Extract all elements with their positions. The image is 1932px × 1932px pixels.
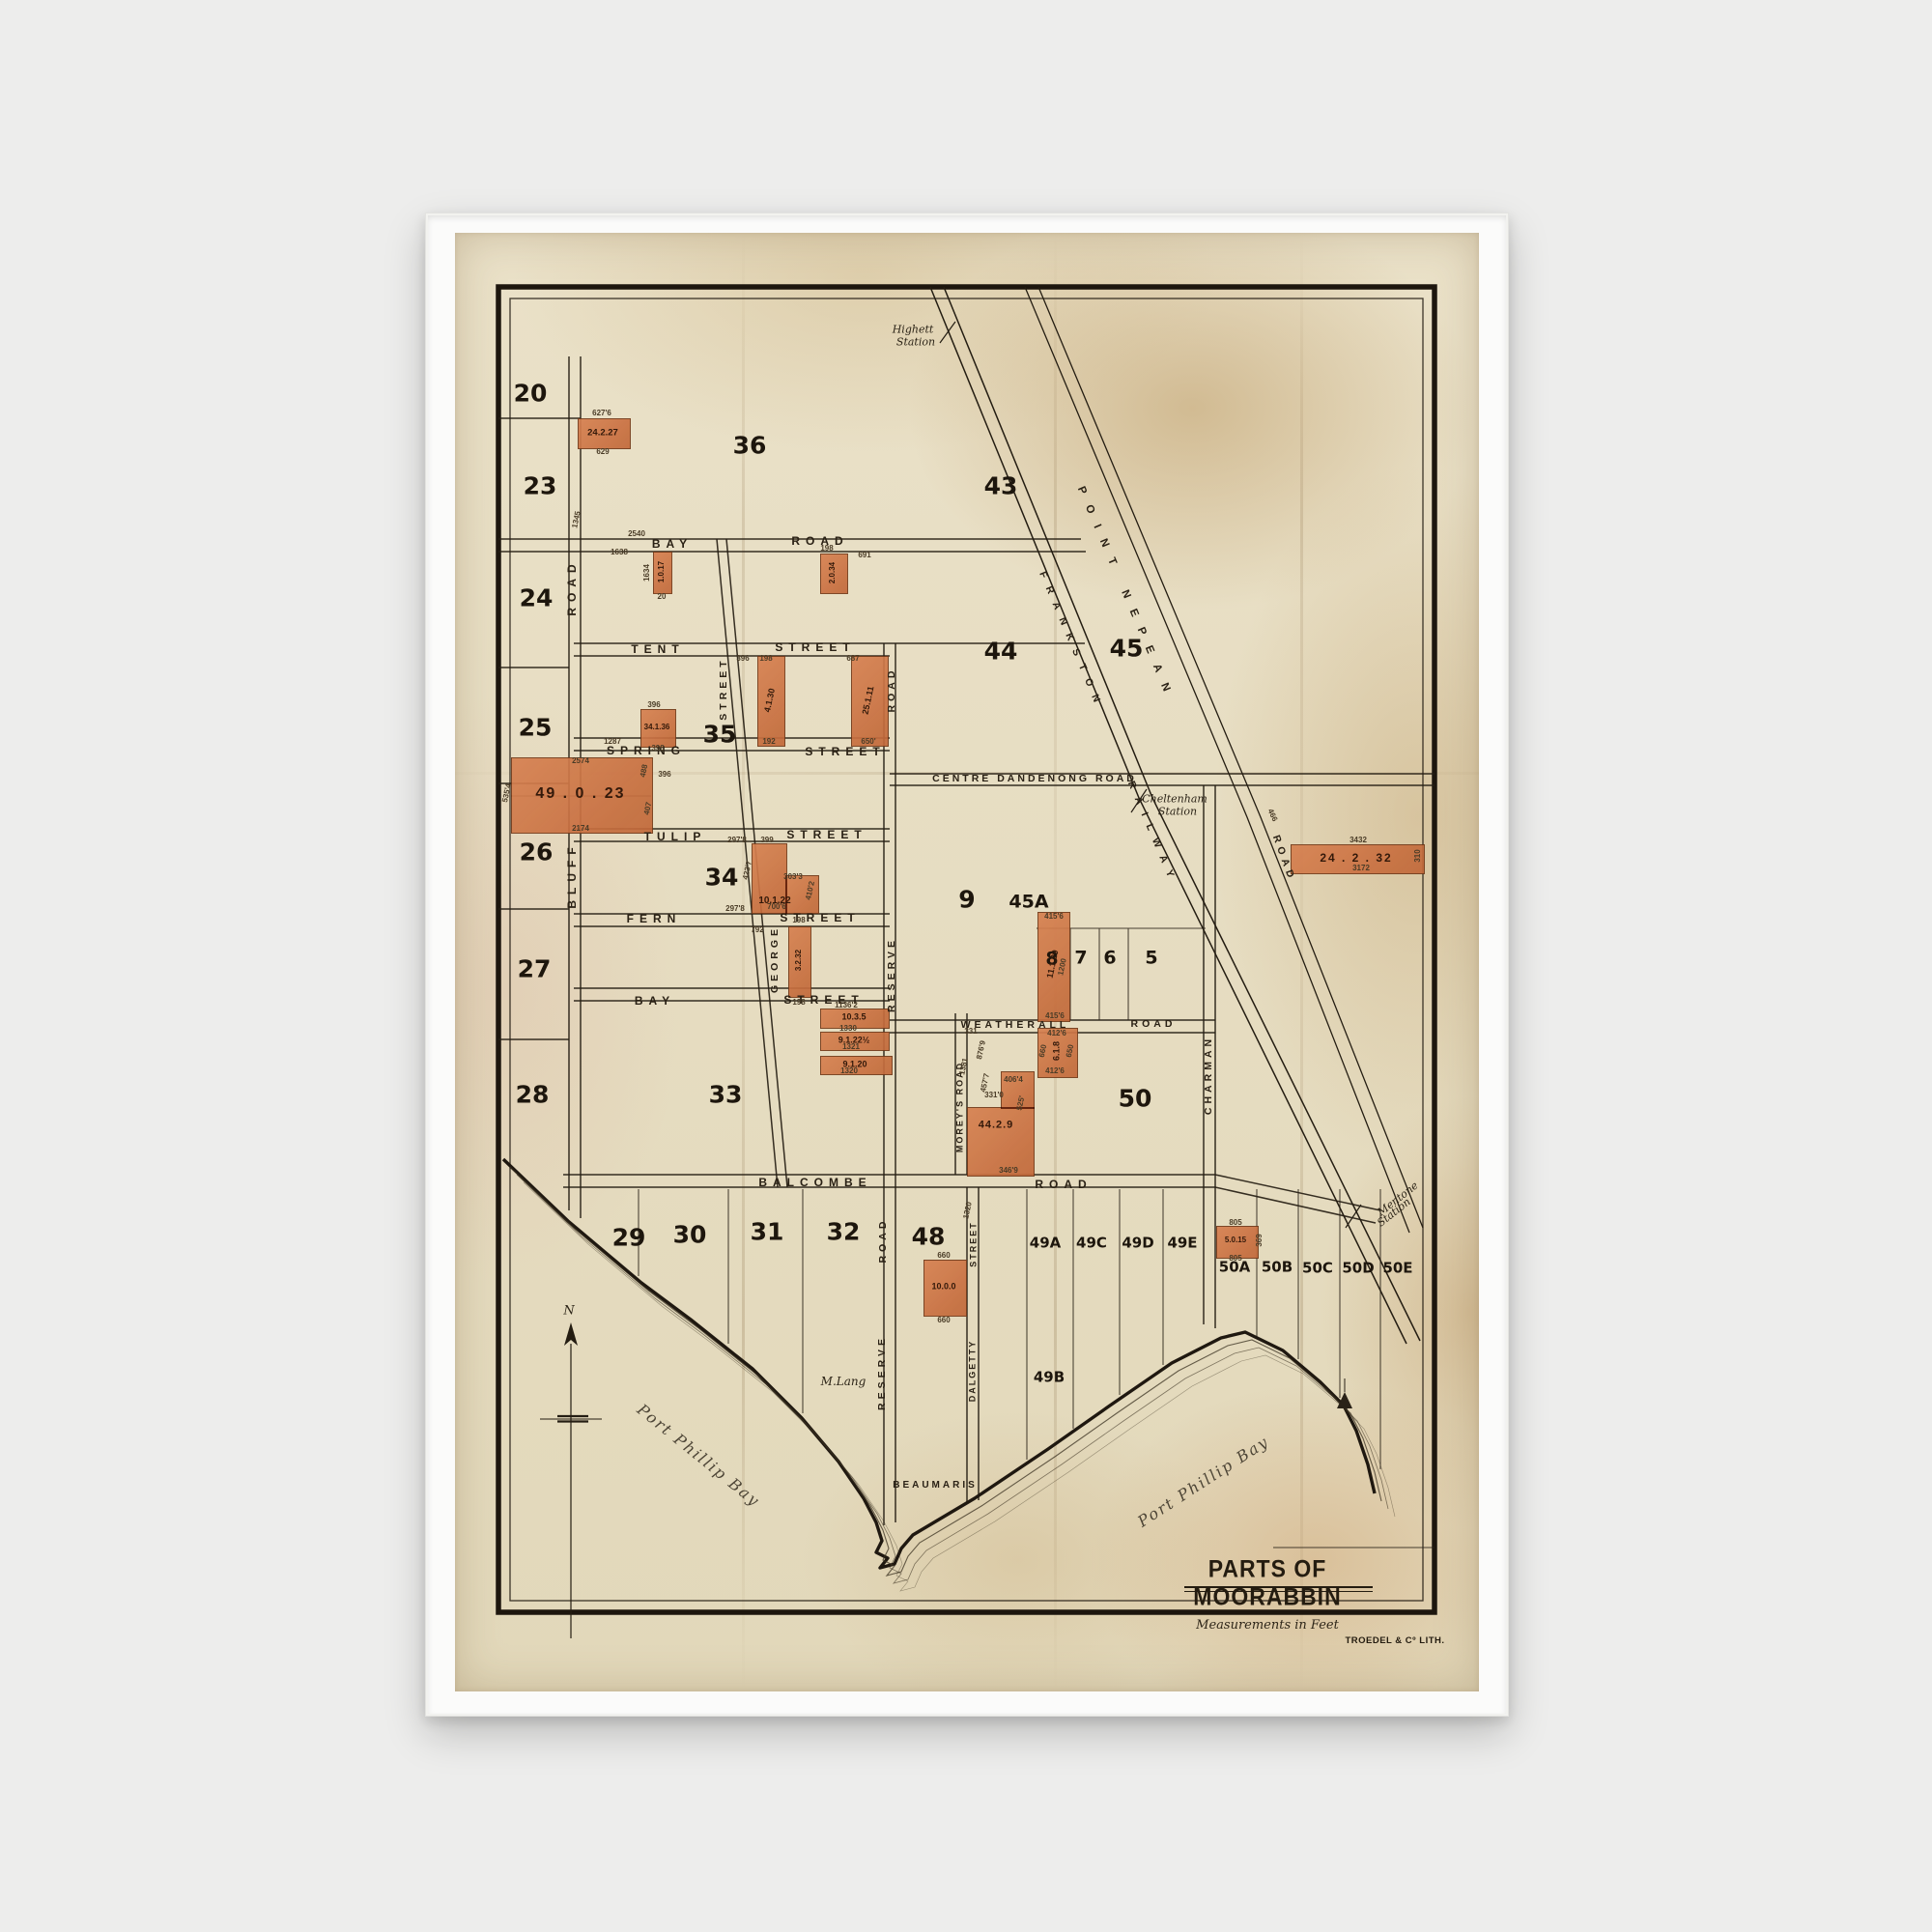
street-label: FERN: [627, 913, 682, 924]
block-number-label: 23: [524, 474, 557, 498]
parcel-acreage-label: 25.1.11: [862, 686, 876, 716]
measurement-label: 396: [736, 655, 749, 663]
measurement-label: 369: [1256, 1234, 1264, 1246]
street-label: ROAD: [1131, 1019, 1177, 1030]
measurement-label: 1320: [840, 1067, 858, 1075]
street-label: FRANKSTON: [1037, 570, 1106, 712]
street-label: CHARMAN: [1204, 1036, 1214, 1115]
parcel-acreage-label: 10.3.5: [841, 1013, 866, 1022]
measurement-label: 412'6: [1047, 1030, 1066, 1037]
parcel-acreage-label: 3.2.32: [795, 950, 803, 971]
block-number-label: 5: [1145, 950, 1157, 968]
block-number-label: 25: [519, 716, 553, 740]
block-number-label: 26: [520, 840, 554, 865]
street-label: CENTRE DANDENONG ROAD: [932, 774, 1137, 784]
measurement-label: 198: [792, 999, 805, 1007]
parcel-acreage-label: 24.2.27: [587, 428, 618, 438]
station-label: Station: [896, 337, 935, 348]
block-number-label: 45A: [1009, 894, 1048, 912]
measurement-label: 1200: [1057, 957, 1068, 976]
measurement-label: 1330: [839, 1025, 857, 1033]
measurement-label: 297'8: [727, 837, 747, 844]
poster-paper: BAYROADTENTSTREETSPRINGSTREETCENTRE DAND…: [455, 233, 1479, 1691]
parcel-acreage-label: 24 . 2 . 32: [1320, 852, 1392, 864]
measurement-label: 805: [1229, 1255, 1241, 1263]
street-label: TENT: [631, 643, 684, 655]
street-label: STREET: [970, 1221, 979, 1267]
parcel-acreage-label: 44.2.9: [979, 1121, 1014, 1131]
block-number-label: 32: [827, 1220, 861, 1244]
block-number-label: 49D: [1122, 1236, 1153, 1251]
measurement-label: 20: [658, 593, 667, 601]
block-number-label: 30: [673, 1223, 707, 1247]
street-label: STREET: [775, 641, 855, 653]
measurement-label: 629: [596, 448, 609, 456]
measurement-label: 535'4: [501, 783, 513, 804]
measurement-label: 1320: [962, 1201, 974, 1219]
block-number-label: 20: [514, 382, 548, 406]
measurement-label: 660: [1038, 1044, 1049, 1059]
measurement-label: 192: [762, 738, 775, 746]
street-label: BEAUMARIS: [893, 1481, 978, 1491]
measurement-label: 488: [639, 764, 650, 779]
block-number-label: 50E: [1382, 1262, 1412, 1276]
measurement-label: 650': [861, 738, 875, 746]
measurement-label: 331: [964, 1028, 977, 1036]
lithographer-credit: TROEDEL & Cº LITH.: [1322, 1635, 1467, 1646]
measurement-label: 407: [643, 802, 654, 816]
parcel-acreage-label: 49 . 0 . 23: [535, 786, 625, 802]
measurement-label: 310: [1414, 849, 1422, 862]
map-subtitle: Measurements in Feet: [1163, 1618, 1372, 1633]
station-label: Highett: [893, 325, 934, 335]
measurement-label: 297'8: [725, 905, 745, 913]
map-title-block: PARTS OF MOORABBIN Measurements in Feet: [1163, 1557, 1372, 1633]
block-number-label: 27: [518, 957, 552, 981]
measurement-label: 1381: [958, 1057, 970, 1075]
measurement-label: 700'6: [767, 903, 786, 911]
measurement-label: 1345: [571, 510, 582, 528]
street-label: BAY: [652, 538, 693, 550]
block-number-label: 36: [733, 434, 767, 458]
water-body-label: Port Phillip Bay: [635, 1402, 763, 1510]
parcel-acreage-label: 4.1.30: [763, 688, 777, 713]
street-label: GEORGE: [770, 925, 781, 993]
block-number-label: 49C: [1076, 1236, 1107, 1251]
station-label: N: [563, 1305, 574, 1318]
block-number-label: 35: [703, 723, 737, 747]
measurement-label: 331'0: [984, 1092, 1004, 1099]
parcel-acreage-label: 5.0.15: [1225, 1236, 1246, 1244]
station-label: M.Lang: [821, 1376, 867, 1387]
measurement-label: 1634: [643, 564, 651, 582]
measurement-label: 876'9: [976, 1040, 987, 1061]
measurement-label: 2574: [572, 757, 589, 765]
station-label: Cheltenham: [1142, 794, 1207, 805]
wall: BAYROADTENTSTREETSPRINGSTREETCENTRE DAND…: [0, 0, 1932, 1932]
street-label: ROAD: [1035, 1179, 1092, 1190]
street-label: RESERVE: [887, 937, 897, 1012]
measurement-label: 396: [647, 701, 660, 709]
water-body-label: Port Phillip Bay: [1135, 1434, 1271, 1530]
block-number-label: 43: [984, 474, 1018, 498]
measurement-label: 1638: [611, 549, 628, 556]
measurement-label: 466: [1266, 808, 1279, 822]
measurement-label: 198: [759, 655, 772, 663]
measurement-label: 627'6: [592, 410, 611, 417]
measurement-label: 687: [846, 655, 859, 663]
measurement-label: 3432: [1350, 837, 1367, 844]
measurement-label: 412'6: [1045, 1067, 1065, 1075]
parcel-acreage-label: 34.1.36: [644, 724, 670, 731]
block-number-label: 49E: [1167, 1236, 1197, 1251]
measurement-label: 415'6: [1044, 913, 1064, 921]
measurement-label: 2174: [572, 825, 589, 833]
street-label: TULIP: [644, 831, 707, 842]
street-label: ROAD: [878, 1218, 889, 1264]
block-number-label: 7: [1074, 950, 1087, 968]
measurement-label: 410'2: [805, 881, 816, 901]
measurement-label: 406'4: [1004, 1076, 1023, 1084]
street-label: ROAD: [887, 668, 897, 713]
block-number-label: 34: [705, 866, 739, 890]
street-label: STREET: [786, 829, 867, 840]
parcel-acreage-label: 1.0.17: [658, 561, 666, 582]
street-label: ROAD: [566, 558, 578, 615]
parcel-acreage-label: 2.0.34: [829, 562, 837, 583]
parcel-acreage-label: 10.0.0: [931, 1283, 955, 1292]
measurement-label: 198: [820, 545, 833, 553]
measurement-label: 805: [1229, 1219, 1241, 1227]
block-number-label: 31: [751, 1220, 784, 1244]
measurement-label: 691: [858, 552, 870, 559]
block-number-label: 28: [516, 1083, 550, 1107]
street-label: BALCOMBE: [758, 1177, 871, 1188]
block-number-label: 50D: [1342, 1262, 1374, 1276]
picture-frame: BAYROADTENTSTREETSPRINGSTREETCENTRE DAND…: [425, 213, 1509, 1717]
measurement-label: 398: [651, 745, 664, 753]
parcel-acreage-label: 6.1.8: [1053, 1041, 1062, 1061]
block-number-label: 50B: [1262, 1261, 1293, 1275]
measurement-label: 650: [1065, 1044, 1076, 1059]
block-number-label: 29: [612, 1226, 646, 1250]
street-label: STREET: [719, 657, 729, 720]
block-number-label: 24: [520, 586, 554, 611]
block-number-label: 44: [984, 639, 1018, 664]
map-labels-layer: BAYROADTENTSTREETSPRINGSTREETCENTRE DAND…: [455, 233, 1479, 1691]
map-title: PARTS OF MOORABBIN: [1163, 1555, 1372, 1611]
block-number-label: 50C: [1302, 1262, 1333, 1276]
street-label: RESERVE: [877, 1335, 888, 1410]
measurement-label: 3172: [1352, 865, 1370, 872]
measurement-label: 1287: [604, 738, 621, 746]
street-label: STREET: [805, 746, 885, 757]
measurement-label: 1136'2: [835, 1002, 858, 1009]
measurement-label: 415'6: [1045, 1012, 1065, 1020]
block-number-label: 6: [1103, 950, 1116, 968]
block-number-label: 45: [1110, 637, 1144, 661]
measurement-label: 792: [751, 926, 763, 934]
measurement-label: 1321: [842, 1043, 860, 1051]
street-label: SPRING: [607, 745, 686, 756]
block-number-label: 9: [958, 888, 975, 912]
street-label: ROAD: [1270, 834, 1296, 883]
measurement-label: 346'9: [999, 1167, 1018, 1175]
measurement-label: 303'3: [783, 873, 803, 881]
block-number-label: 50: [1119, 1087, 1152, 1111]
measurement-label: 396: [658, 771, 670, 779]
street-label: DALGETTY: [969, 1340, 978, 1403]
block-number-label: 48: [912, 1225, 946, 1249]
street-label: BLUFF: [566, 841, 578, 908]
measurement-label: 660: [937, 1252, 950, 1260]
street-label: BAY: [635, 995, 675, 1007]
measurement-label: 423'7: [742, 861, 753, 881]
measurement-label: 198: [792, 917, 805, 924]
measurement-label: 660: [937, 1317, 950, 1324]
measurement-label: 525': [1016, 1095, 1027, 1112]
measurement-label: 399: [760, 837, 773, 844]
block-number-label: 33: [709, 1083, 743, 1107]
station-label: Station: [1158, 807, 1197, 817]
block-number-label: 49B: [1034, 1371, 1065, 1385]
block-number-label: 49A: [1030, 1236, 1061, 1251]
measurement-label: 2540: [628, 530, 645, 538]
